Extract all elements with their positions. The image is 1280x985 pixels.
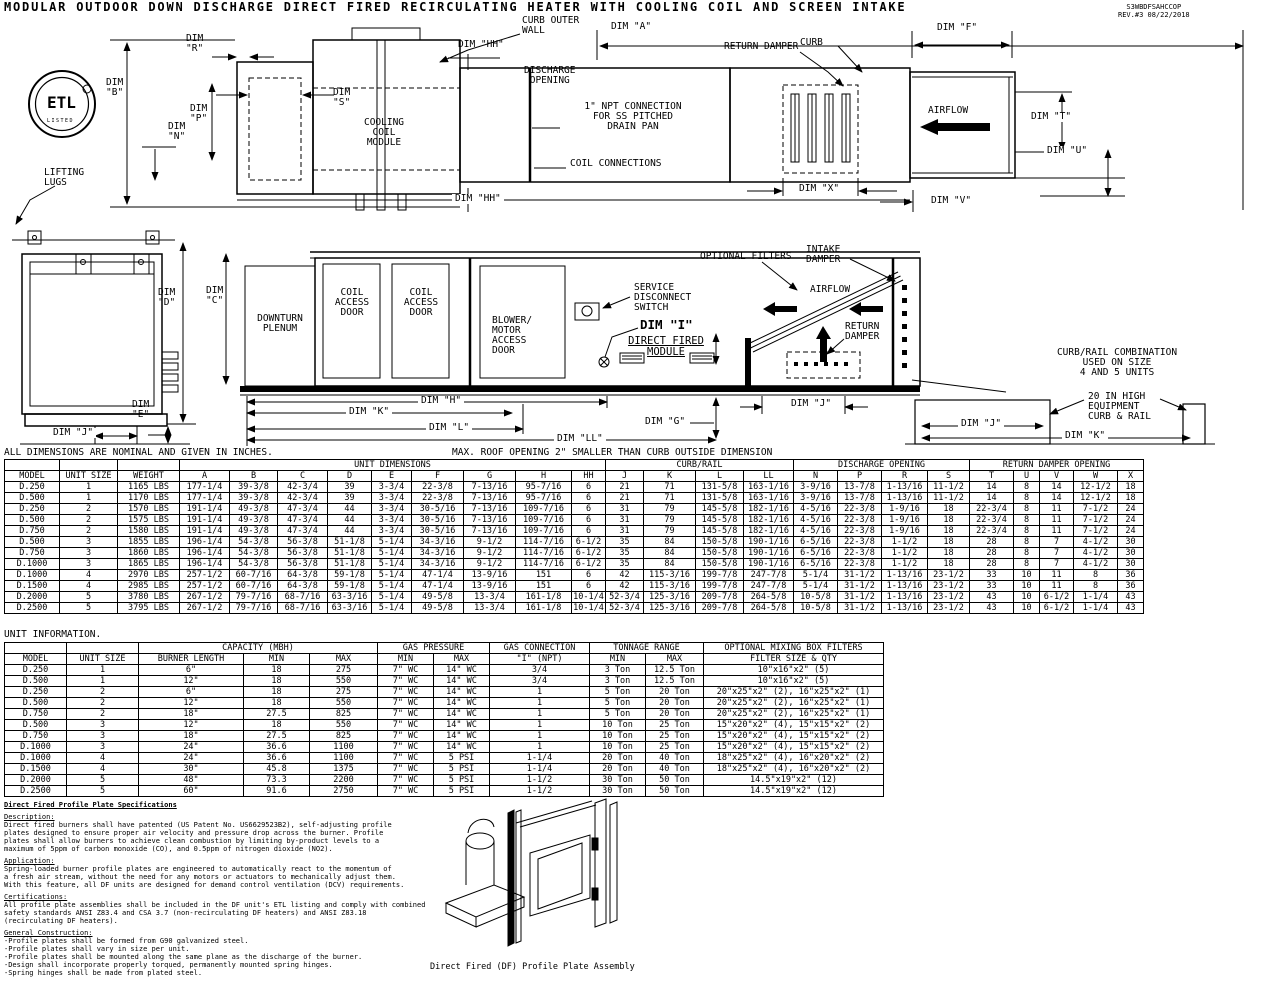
dim-c-label: DIM "C" <box>206 286 223 306</box>
table-cell: 151 <box>516 570 572 581</box>
table-cell: 190-1/16 <box>744 559 794 570</box>
table-cell: 264-5/8 <box>744 603 794 614</box>
unit-information-heading: UNIT INFORMATION. <box>4 629 101 640</box>
table-cell: 13-3/4 <box>464 592 516 603</box>
dim-x-label: DIM "X" <box>796 184 842 194</box>
table-cell: 44 <box>328 504 372 515</box>
table-cell: 247-7/8 <box>744 570 794 581</box>
table-cell: 43 <box>970 603 1014 614</box>
table-cell: 161-1/8 <box>516 592 572 603</box>
table-cell: 150-5/8 <box>696 548 744 559</box>
table-cell: 6 <box>572 504 606 515</box>
table-cell: 182-1/16 <box>744 515 794 526</box>
table-cell: 1 <box>67 676 139 687</box>
table-column-header: H <box>516 471 572 482</box>
table-cell: 9-1/2 <box>464 537 516 548</box>
dim-j-mid-label: DIM "J" <box>788 399 834 409</box>
table-cell: 4 <box>60 570 118 581</box>
table-cell: 12-1/2 <box>1074 493 1118 504</box>
table-cell: 1-13/16 <box>882 581 928 592</box>
table-row: D.100042970 LBS257-1/260-7/1664-3/859-1/… <box>5 570 1144 581</box>
table-column-header: MODEL <box>5 654 67 665</box>
table-cell: 23-1/2 <box>928 603 970 614</box>
table-row: D.25026"182757" WC14" WC15 Ton20 Ton20"x… <box>5 687 884 698</box>
table-cell: 2 <box>67 709 139 720</box>
table-cell: 47-3/4 <box>278 515 328 526</box>
table-cell: 13-7/8 <box>838 482 882 493</box>
table-cell: 190-1/16 <box>744 537 794 548</box>
airflow-top-label: AIRFLOW <box>928 106 968 116</box>
table-group-header <box>67 643 139 654</box>
table-cell: 7" WC <box>378 720 434 731</box>
table-cell: 18"x25"x2" (4), 16"x20"x2" (2) <box>704 753 884 764</box>
table-column-header: G <box>464 471 516 482</box>
table-cell: 52-3/4 <box>606 592 644 603</box>
table-cell: 45.8 <box>244 764 310 775</box>
table-cell: 28 <box>970 559 1014 570</box>
data-table: CAPACITY (MBH)GAS PRESSUREGAS CONNECTION… <box>4 642 884 797</box>
table-cell: 71 <box>644 493 696 504</box>
table-cell: 14" WC <box>434 698 490 709</box>
table-cell: 24 <box>1118 515 1144 526</box>
table-cell: 7" WC <box>378 775 434 786</box>
table-cell: D.750 <box>5 548 60 559</box>
table-cell: 7" WC <box>378 698 434 709</box>
table-cell: D.500 <box>5 515 60 526</box>
table-cell: D.750 <box>5 526 60 537</box>
table-cell: 6 <box>572 515 606 526</box>
table-cell: 6 <box>572 482 606 493</box>
table-cell: 2 <box>60 504 118 515</box>
table-cell: D.1000 <box>5 742 67 753</box>
table-cell: 14 <box>1040 482 1074 493</box>
dim-j-endview-label: DIM "J" <box>50 428 96 438</box>
table-cell: 28 <box>970 548 1014 559</box>
table-cell: 10-5/8 <box>794 603 838 614</box>
table-cell: 18" <box>139 731 244 742</box>
table-cell: 11 <box>1040 581 1074 592</box>
table-row: D.25011165 LBS177-1/439-3/842-3/4393-3/4… <box>5 482 1144 493</box>
table-cell: 5-1/4 <box>372 548 412 559</box>
table-cell: 7 <box>1040 559 1074 570</box>
spec-title: Certifications: <box>4 893 456 901</box>
dim-ll-label: DIM "LL" <box>554 434 606 444</box>
table-cell: 4 <box>67 753 139 764</box>
table-cell: 6-1/2 <box>1040 603 1074 614</box>
spec-body: -Profile plates shall be formed from G90… <box>4 937 456 977</box>
table-cell: 7-13/16 <box>464 493 516 504</box>
table-cell: 1-1/4 <box>1074 592 1118 603</box>
table-row: D.50021575 LBS191-1/449-3/847-3/4443-3/4… <box>5 515 1144 526</box>
table-cell: 1 <box>490 731 590 742</box>
table-cell: 8 <box>1014 537 1040 548</box>
table-cell: 2985 LBS <box>118 581 180 592</box>
table-cell: 20"x25"x2" (2), 16"x25"x2" (1) <box>704 709 884 720</box>
table-cell: 8 <box>1014 493 1040 504</box>
table-cell: 5 Ton <box>590 687 646 698</box>
table-cell: 30 <box>1118 537 1144 548</box>
table-cell: 131-5/8 <box>696 482 744 493</box>
table-column-header: C <box>278 471 328 482</box>
table-column-header: UNIT SIZE <box>60 471 118 482</box>
coil-access-door-1-label: COIL ACCESS DOOR <box>324 288 380 318</box>
table-cell: 145-5/8 <box>696 515 744 526</box>
table-row: D.500312"185507" WC14" WC110 Ton25 Ton15… <box>5 720 884 731</box>
table-cell: 177-1/4 <box>180 482 230 493</box>
table-cell: 79 <box>644 504 696 515</box>
table-cell: 1-9/16 <box>882 515 928 526</box>
table-cell: D.250 <box>5 504 60 515</box>
table-cell: 1 <box>490 720 590 731</box>
table-cell: 18 <box>1118 493 1144 504</box>
table-cell: 3-9/16 <box>794 482 838 493</box>
table-cell: 1-13/16 <box>882 592 928 603</box>
table-column-header: UNIT SIZE <box>67 654 139 665</box>
table-column-header: HH <box>572 471 606 482</box>
table-group-header: RETURN DAMPER OPENING <box>970 460 1144 471</box>
table-cell: 5 <box>67 775 139 786</box>
table-column-header: R <box>882 471 928 482</box>
table-cell: D.500 <box>5 537 60 548</box>
table-cell: 125-3/16 <box>644 592 696 603</box>
table-cell: 8 <box>1014 526 1040 537</box>
table-cell: 10-1/4 <box>572 603 606 614</box>
table-cell: 20 Ton <box>646 698 704 709</box>
table-cell: 71 <box>644 482 696 493</box>
table-cell: 109-7/16 <box>516 515 572 526</box>
dim-k-label: DIM "K" <box>346 407 392 417</box>
table-column-header: MIN <box>378 654 434 665</box>
table-cell: 4-1/2 <box>1074 559 1118 570</box>
drawing-sheet: MODULAR OUTDOOR DOWN DISCHARGE DIRECT FI… <box>0 0 1280 985</box>
dim-u-label: DIM "U" <box>1044 146 1090 156</box>
table-cell: 15"x20"x2" (4), 15"x15"x2" (2) <box>704 742 884 753</box>
table-cell: 1575 LBS <box>118 515 180 526</box>
table-cell: 10 <box>1014 570 1040 581</box>
dim-n-label: DIM "N" <box>168 122 185 142</box>
table-cell: 5 <box>67 786 139 797</box>
table-cell: 6 <box>572 526 606 537</box>
curb-label: CURB <box>800 38 823 48</box>
table-cell: D.1500 <box>5 581 60 592</box>
table-cell: 7-13/16 <box>464 504 516 515</box>
table-cell: 49-3/8 <box>230 515 278 526</box>
table-cell: 275 <box>310 687 378 698</box>
table-cell: 1570 LBS <box>118 504 180 515</box>
table-column-header: E <box>372 471 412 482</box>
table-cell: 30 <box>1118 548 1144 559</box>
dim-t-label: DIM "T" <box>1028 112 1074 122</box>
dim-v-label: DIM "V" <box>928 196 974 206</box>
table-group-header: OPTIONAL MIXING BOX FILTERS <box>704 643 884 654</box>
table-cell: 5 PSI <box>434 764 490 775</box>
table-cell: 190-1/16 <box>744 548 794 559</box>
table-cell: 14" WC <box>434 742 490 753</box>
dim-h-label: DIM "H" <box>418 396 464 406</box>
table-cell: D.2500 <box>5 603 60 614</box>
table-cell: 3-3/4 <box>372 526 412 537</box>
cooling-coil-module-label: COOLING COIL MODULE <box>338 118 430 148</box>
table-column-header: V <box>1040 471 1074 482</box>
table-cell: 11-1/2 <box>928 482 970 493</box>
table-cell: D.500 <box>5 720 67 731</box>
table-cell: 22-3/8 <box>838 504 882 515</box>
spec-section-general-construction: General Construction: -Profile plates sh… <box>4 929 456 977</box>
table-cell: 50 Ton <box>646 775 704 786</box>
table-cell: 23-1/2 <box>928 592 970 603</box>
table-cell: 8 <box>1014 504 1040 515</box>
table-row: D.150042985 LBS257-1/260-7/1664-3/859-1/… <box>5 581 1144 592</box>
table-row: D.25016"182757" WC14" WC3/43 Ton12.5 Ton… <box>5 665 884 676</box>
table-cell: 21 <box>606 482 644 493</box>
table-cell: 34-3/16 <box>412 537 464 548</box>
table-column-header: "I" (NPT) <box>490 654 590 665</box>
high-curb-note: 20 IN HIGH EQUIPMENT CURB & RAIL <box>1088 392 1151 422</box>
table-cell: D.750 <box>5 709 67 720</box>
table-cell: 10 Ton <box>590 731 646 742</box>
table-cell: 125-3/16 <box>644 603 696 614</box>
coil-connections-label: COIL CONNECTIONS <box>570 159 662 169</box>
table-cell: 64-3/8 <box>278 570 328 581</box>
table-cell: 6-5/16 <box>794 548 838 559</box>
table-cell: 267-1/2 <box>180 603 230 614</box>
table-cell: 42 <box>606 570 644 581</box>
table-cell: 24 <box>1118 504 1144 515</box>
table-cell: 79-7/16 <box>230 603 278 614</box>
table-cell: 10 <box>1014 581 1040 592</box>
table-cell: 8 <box>1014 548 1040 559</box>
service-disconnect-label: SERVICE DISCONNECT SWITCH <box>634 283 691 313</box>
table-cell: 20"x25"x2" (2), 16"x25"x2" (1) <box>704 698 884 709</box>
table-cell: 8 <box>1014 559 1040 570</box>
table-group-header: CURB/RAIL <box>606 460 794 471</box>
table-cell: 18 <box>928 504 970 515</box>
table-row: D.1500430"45.813757" WC5 PSI1-1/420 Ton4… <box>5 764 884 775</box>
table-column-header: MAX <box>310 654 378 665</box>
table-cell: 79 <box>644 515 696 526</box>
table-cell: D.1000 <box>5 753 67 764</box>
spec-heading: Direct Fired Profile Plate Specification… <box>4 801 456 809</box>
table-cell: 5 PSI <box>434 775 490 786</box>
table-cell: 30-5/16 <box>412 526 464 537</box>
table-cell: 18 <box>244 720 310 731</box>
table-column-header: MODEL <box>5 471 60 482</box>
table-cell: 35 <box>606 548 644 559</box>
table-cell: 43 <box>1118 592 1144 603</box>
table-cell: 825 <box>310 731 378 742</box>
table-cell: 14 <box>970 493 1014 504</box>
table-cell: 39-3/8 <box>230 482 278 493</box>
table-cell: 31-1/2 <box>838 603 882 614</box>
curb-rail-note: CURB/RAIL COMBINATION USED ON SIZE 4 AND… <box>1032 348 1202 378</box>
table-cell: 1-13/16 <box>882 482 928 493</box>
table-row: D.75031860 LBS196-1/454-3/856-3/851-1/85… <box>5 548 1144 559</box>
table-cell: 22-3/8 <box>838 548 882 559</box>
table-cell: 28 <box>970 537 1014 548</box>
table-cell: 84 <box>644 548 696 559</box>
elevation-drawings <box>0 0 1280 458</box>
table-cell: 7 <box>1040 548 1074 559</box>
table-cell: 1375 <box>310 764 378 775</box>
return-damper-mid-label: RETURN DAMPER <box>845 322 879 342</box>
etl-listed-logo: ETL <box>47 93 76 112</box>
table-cell: 20 Ton <box>590 764 646 775</box>
table-group-header: DISCHARGE OPENING <box>794 460 970 471</box>
table-cell: 27.5 <box>244 709 310 720</box>
table-cell: 24" <box>139 742 244 753</box>
table-cell: 7" WC <box>378 731 434 742</box>
coil-access-door-2-label: COIL ACCESS DOOR <box>393 288 449 318</box>
table-cell: 5-1/4 <box>372 592 412 603</box>
table-column-header: L <box>696 471 744 482</box>
etl-listed-label: LISTED <box>47 118 74 124</box>
table-cell: 264-5/8 <box>744 592 794 603</box>
table-cell: 49-3/8 <box>230 526 278 537</box>
table-cell: 4-1/2 <box>1074 548 1118 559</box>
dim-hh-bottom-label: DIM "HH" <box>452 194 504 204</box>
table-cell: 13-7/8 <box>838 493 882 504</box>
table-cell: D.1000 <box>5 559 60 570</box>
table-cell: 59-1/8 <box>328 570 372 581</box>
table-cell: 35 <box>606 559 644 570</box>
table-cell: 131-5/8 <box>696 493 744 504</box>
discharge-opening-label: DISCHARGE OPENING <box>524 66 575 86</box>
table-cell: 3 <box>67 731 139 742</box>
table-cell: 1-1/4 <box>1074 603 1118 614</box>
table-cell: 257-1/2 <box>180 581 230 592</box>
assembly-caption: Direct Fired (DF) Profile Plate Assembly <box>430 962 635 972</box>
table-cell: 12.5 Ton <box>646 676 704 687</box>
table-cell: 8 <box>1014 482 1040 493</box>
table-cell: 52-3/4 <box>606 603 644 614</box>
table-cell: D.2000 <box>5 592 60 603</box>
table-cell: 10-1/4 <box>572 592 606 603</box>
table-cell: 49-5/8 <box>412 603 464 614</box>
table-cell: 247-7/8 <box>744 581 794 592</box>
table-cell: 3780 LBS <box>118 592 180 603</box>
table-cell: 7" WC <box>378 764 434 775</box>
table-row: D.1000324"36.611007" WC14" WC110 Ton25 T… <box>5 742 884 753</box>
blower-motor-door-label: BLOWER/ MOTOR ACCESS DOOR <box>492 316 532 356</box>
table-cell: D.500 <box>5 698 67 709</box>
table-row: D.200053780 LBS267-1/279-7/1668-7/1663-3… <box>5 592 1144 603</box>
dim-l-label: DIM "L" <box>426 423 472 433</box>
table-row: D.750218"27.58257" WC14" WC15 Ton20 Ton2… <box>5 709 884 720</box>
table-cell: 3 <box>67 720 139 731</box>
table-cell: 1-13/16 <box>882 570 928 581</box>
dim-k-curb-label: DIM "K" <box>1062 431 1108 441</box>
table-cell: 12" <box>139 720 244 731</box>
table-cell: 12.5 Ton <box>646 665 704 676</box>
table-cell: 7 <box>1040 537 1074 548</box>
table-cell: 30" <box>139 764 244 775</box>
table-cell: 196-1/4 <box>180 537 230 548</box>
table-cell: 18 <box>928 537 970 548</box>
table-cell: 115-3/16 <box>644 570 696 581</box>
table-cell: 3/4 <box>490 676 590 687</box>
table-cell: 36.6 <box>244 742 310 753</box>
table-cell: 3-3/4 <box>372 504 412 515</box>
table-group-header: CAPACITY (MBH) <box>139 643 378 654</box>
table-column-header: N <box>794 471 838 482</box>
table-cell: 4-1/2 <box>1074 537 1118 548</box>
table-cell: 30-5/16 <box>412 504 464 515</box>
table-cell: 199-7/8 <box>696 570 744 581</box>
dim-b-label: DIM "B" <box>106 78 123 98</box>
table-cell: 7-13/16 <box>464 526 516 537</box>
table-row: D.500212"185507" WC14" WC15 Ton20 Ton20"… <box>5 698 884 709</box>
table-cell: 196-1/4 <box>180 559 230 570</box>
table-row: D.50011170 LBS177-1/439-3/842-3/4393-3/4… <box>5 493 1144 504</box>
table-cell: D.1000 <box>5 570 60 581</box>
table-cell: 1100 <box>310 753 378 764</box>
table-cell: 54-3/8 <box>230 548 278 559</box>
table-cell: 22-3/8 <box>838 515 882 526</box>
table-cell: 42-3/4 <box>278 493 328 504</box>
table-cell: 95-7/16 <box>516 493 572 504</box>
direct-fired-module-label: DIRECT FIRED MODULE <box>614 336 718 358</box>
table-cell: 7-1/2 <box>1074 504 1118 515</box>
table-column-header: D <box>328 471 372 482</box>
table-cell: 267-1/2 <box>180 592 230 603</box>
table-cell: 6-1/2 <box>1040 592 1074 603</box>
table-cell: 1 <box>490 709 590 720</box>
table-cell: D.2500 <box>5 786 67 797</box>
table-cell: 7" WC <box>378 676 434 687</box>
dim-r-label: DIM "R" <box>186 34 203 54</box>
table-cell: 35 <box>606 537 644 548</box>
table-cell: 2 <box>60 526 118 537</box>
table-cell: 5-1/4 <box>372 603 412 614</box>
return-damper-label: RETURN DAMPER <box>724 42 798 52</box>
table-cell: 22-3/8 <box>412 493 464 504</box>
table-cell: 109-7/16 <box>516 504 572 515</box>
downturn-plenum-label: DOWNTURN PLENUM <box>247 314 313 334</box>
table-cell: 3-3/4 <box>372 493 412 504</box>
table-cell: D.250 <box>5 482 60 493</box>
table-cell: 14" WC <box>434 676 490 687</box>
table-cell: 825 <box>310 709 378 720</box>
table-cell: 31 <box>606 515 644 526</box>
table-cell: 60-7/16 <box>230 581 278 592</box>
dim-j-curb-label: DIM "J" <box>958 419 1004 429</box>
table-cell: 1-1/2 <box>882 559 928 570</box>
table-cell: 11 <box>1040 526 1074 537</box>
table-cell: 199-7/8 <box>696 581 744 592</box>
dimension-table: UNIT DIMENSIONSCURB/RAILDISCHARGE OPENIN… <box>4 459 1144 614</box>
table-cell: 3/4 <box>490 665 590 676</box>
table-cell: 8 <box>1074 570 1118 581</box>
table-cell: 5-1/4 <box>372 537 412 548</box>
table-cell: 68-7/16 <box>278 603 328 614</box>
table-cell: 4-5/16 <box>794 504 838 515</box>
table-cell: 1-13/16 <box>882 603 928 614</box>
table-cell: 22-3/4 <box>970 526 1014 537</box>
table-column-header: BURNER LENGTH <box>139 654 244 665</box>
table-cell: 3 <box>67 742 139 753</box>
table-cell: 4-5/16 <box>794 526 838 537</box>
dim-hh-top-label: DIM "HH" <box>458 40 504 50</box>
table-cell: 257-1/2 <box>180 570 230 581</box>
table-cell: 18 <box>244 676 310 687</box>
table-cell: 31 <box>606 504 644 515</box>
table-cell: 31-1/2 <box>838 592 882 603</box>
table-group-header <box>60 460 118 471</box>
table-cell: 182-1/16 <box>744 504 794 515</box>
table-cell: 20 Ton <box>646 709 704 720</box>
table-cell: 24 <box>1118 526 1144 537</box>
table-row: D.2000548"73.322007" WC5 PSI1-1/230 Ton5… <box>5 775 884 786</box>
